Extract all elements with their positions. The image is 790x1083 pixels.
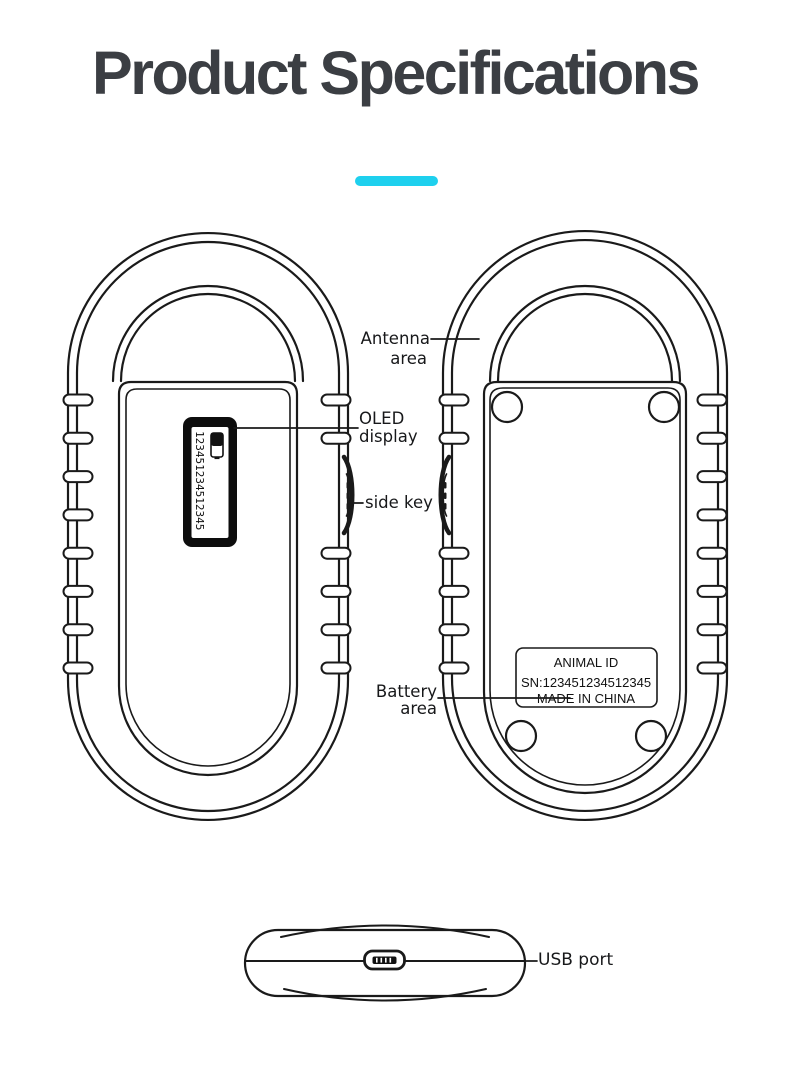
screw-top-left: [492, 392, 522, 422]
bottom-bottom-flange: [284, 989, 486, 1001]
screw-top-right: [649, 392, 679, 422]
plate-animal-id-text: ANIMAL ID: [554, 655, 619, 670]
front-antenna-dome-outer: [113, 286, 303, 381]
oled-display-label: OLED display: [359, 410, 418, 445]
oled-label-line2: display: [359, 428, 418, 446]
antenna-label-line2: area: [361, 349, 430, 369]
side-key-button: [344, 457, 352, 533]
screw-bottom-left: [506, 721, 536, 751]
battery-area-label: Battery area: [376, 684, 437, 717]
plate-serial-number-text: SN:123451234512345: [521, 675, 651, 690]
oled-label-line1: OLED: [359, 409, 404, 428]
usb-label-text: USB port: [538, 950, 613, 970]
oled-display: 123451234512345: [183, 417, 237, 547]
antenna-area-label: Antenna area: [361, 329, 430, 369]
battery-indicator-icon: [211, 433, 223, 459]
bottom-top-flange: [281, 926, 489, 938]
front-view-drawing: 123451234512345: [64, 233, 353, 820]
bottom-view-drawing: [245, 926, 525, 1001]
side-key-label-text: side key: [365, 493, 433, 512]
usb-port: [365, 951, 405, 969]
oled-display-id-text: 123451234512345: [193, 431, 206, 530]
battery-label-line2: area: [376, 701, 437, 718]
product-specifications-page: Product Specifications: [0, 0, 790, 1083]
back-antenna-dome-outer: [490, 286, 680, 381]
front-grip-ribs-right: [322, 395, 351, 674]
back-inner-outline: [452, 240, 718, 811]
back-grip-ribs-right: [698, 395, 727, 674]
back-outer-outline: [443, 231, 727, 820]
screw-bottom-right: [636, 721, 666, 751]
side-key-button-back: [441, 457, 449, 533]
side-key-label: side key: [365, 493, 433, 513]
scanner-diagram-canvas: 123451234512345: [0, 0, 790, 1083]
back-view-drawing: ANIMAL ID SN:123451234512345 MADE IN CHI…: [440, 231, 728, 820]
usb-port-label: USB port: [538, 950, 613, 970]
antenna-label-line1: Antenna: [361, 329, 430, 348]
